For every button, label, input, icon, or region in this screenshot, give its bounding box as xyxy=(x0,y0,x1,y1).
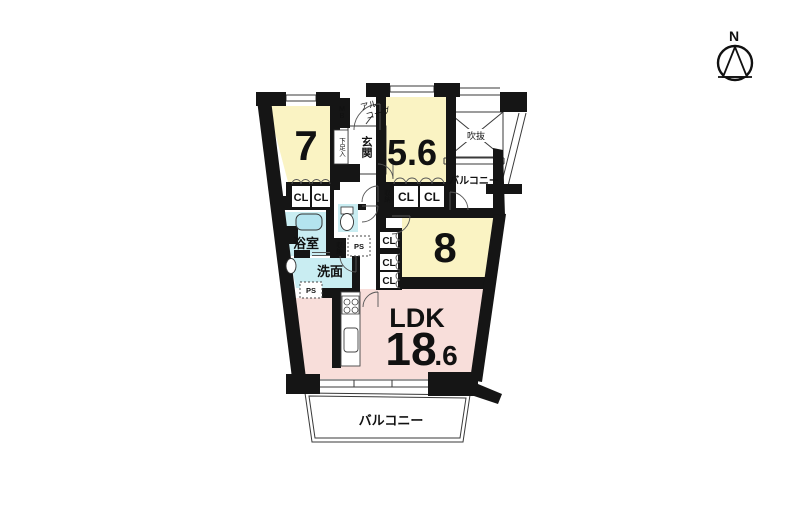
room7-label: 7 xyxy=(294,122,317,169)
ldk-area-frac: .6 xyxy=(434,340,457,371)
closet-label-6: CL xyxy=(382,258,395,269)
room56-window xyxy=(390,86,434,92)
balcony-label-lower: バルコニー xyxy=(359,413,424,428)
toilet-tank xyxy=(341,207,353,214)
floor-plan: N 7 5.6 8 LDK 18 .6 浴室 洗面 玄関 下足入 アル コーブ … xyxy=(0,0,800,531)
balcony-upper-outline xyxy=(501,113,526,190)
closet-label-1: CL xyxy=(294,192,309,204)
compass: N xyxy=(718,28,752,80)
sink xyxy=(344,328,358,352)
pipe-shaft-label-1: PS xyxy=(354,242,364,251)
washer xyxy=(286,259,296,274)
closet-label-2: CL xyxy=(314,192,329,204)
room7-window xyxy=(286,95,316,101)
room8-label: 8 xyxy=(433,224,456,271)
entrance-label: 玄関 xyxy=(360,135,373,159)
closet-label-5: CL xyxy=(382,236,395,247)
toilet-bowl xyxy=(341,214,354,231)
closet-label-4: CL xyxy=(424,190,440,204)
compass-north-label: N xyxy=(729,28,739,44)
ldk-area-int: 18 xyxy=(385,323,436,375)
pipe-shaft-label-2: PS xyxy=(306,286,316,295)
ldk-window xyxy=(316,380,430,387)
closet-label-7: CL xyxy=(382,276,395,287)
bathroom-label: 浴室 xyxy=(293,236,319,251)
atrium-label: 吹抜 xyxy=(467,130,485,141)
closet-label-3: CL xyxy=(398,190,414,204)
compass-needle xyxy=(723,47,747,77)
balcony-label-upper: バルコニー xyxy=(449,175,499,187)
bathtub xyxy=(296,214,322,230)
floor-plan-drawing: N 7 5.6 8 LDK 18 .6 浴室 洗面 玄関 下足入 アル コーブ … xyxy=(0,0,800,531)
washroom-label: 洗面 xyxy=(317,264,343,279)
room56-label: 5.6 xyxy=(387,132,437,173)
meter-box-label: MB xyxy=(338,106,345,120)
